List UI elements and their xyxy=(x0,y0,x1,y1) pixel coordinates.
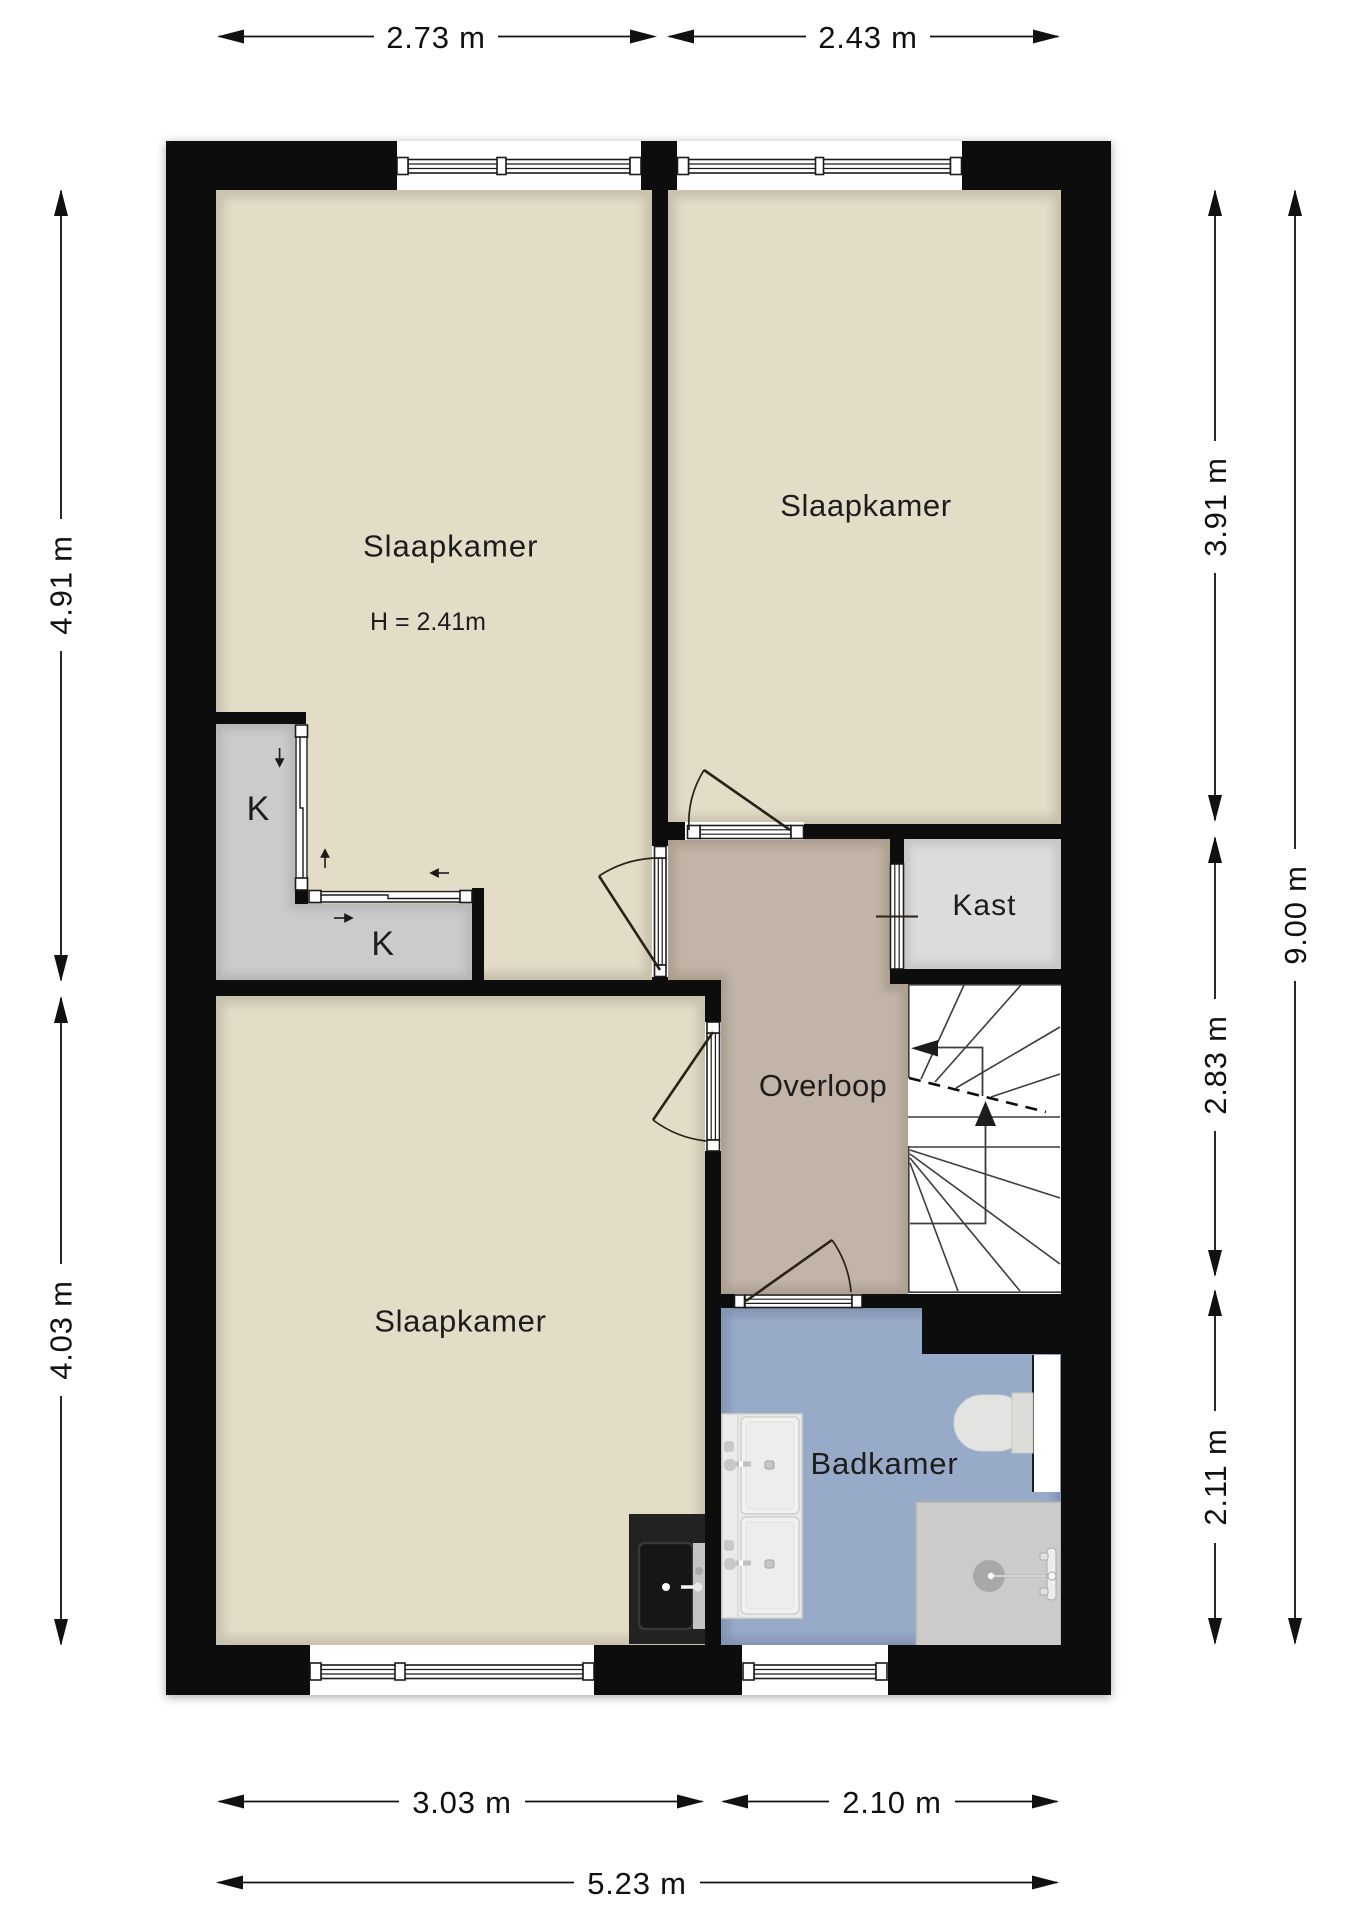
svg-text:K: K xyxy=(371,925,394,963)
svg-text:3.03 m: 3.03 m xyxy=(412,1785,512,1820)
svg-text:Slaapkamer: Slaapkamer xyxy=(363,529,538,564)
svg-text:9.00 m: 9.00 m xyxy=(1278,865,1313,965)
svg-text:K: K xyxy=(247,790,270,828)
svg-text:Slaapkamer: Slaapkamer xyxy=(374,1304,546,1339)
svg-text:2.43 m: 2.43 m xyxy=(818,20,918,55)
svg-text:3.91 m: 3.91 m xyxy=(1198,457,1233,557)
svg-text:4.03 m: 4.03 m xyxy=(44,1280,79,1380)
svg-text:2.73 m: 2.73 m xyxy=(386,20,486,55)
svg-text:2.11 m: 2.11 m xyxy=(1198,1428,1233,1525)
svg-text:Badkamer: Badkamer xyxy=(810,1446,958,1481)
svg-text:4.91 m: 4.91 m xyxy=(44,535,79,635)
svg-text:Slaapkamer: Slaapkamer xyxy=(780,488,951,523)
svg-text:5.23 m: 5.23 m xyxy=(587,1866,687,1901)
svg-text:H = 2.41m: H = 2.41m xyxy=(370,608,486,636)
svg-text:Kast: Kast xyxy=(952,889,1016,922)
svg-text:Overloop: Overloop xyxy=(759,1068,887,1103)
svg-text:2.10 m: 2.10 m xyxy=(842,1785,942,1820)
svg-text:2.83 m: 2.83 m xyxy=(1198,1015,1233,1115)
